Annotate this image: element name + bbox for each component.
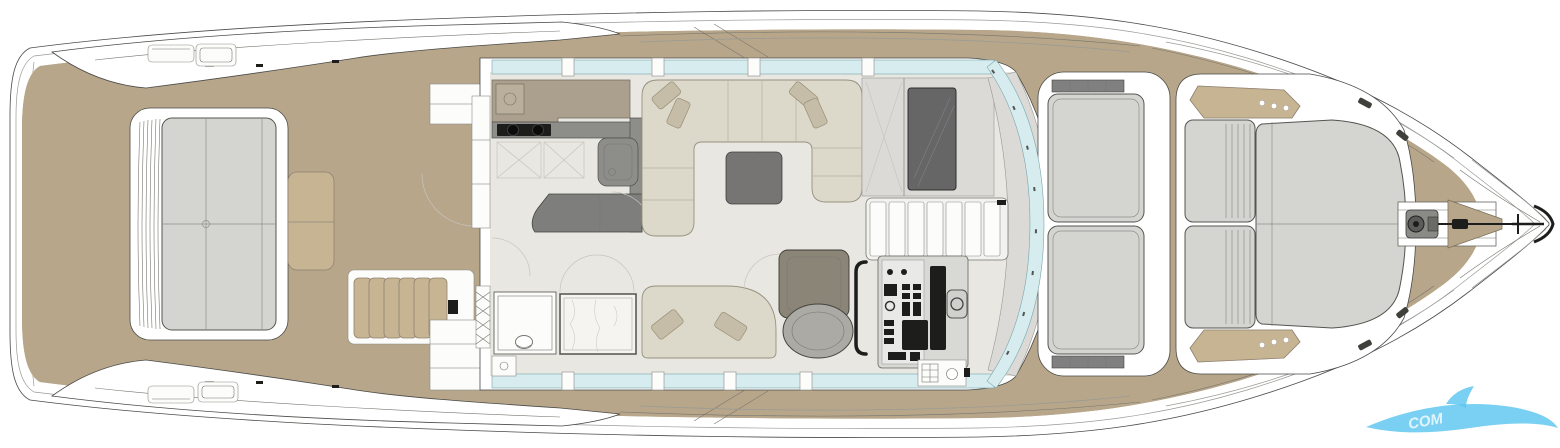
foredeck	[1176, 74, 1416, 374]
foredeck-corner-pad-bottom	[1190, 330, 1300, 362]
console-knob	[887, 269, 893, 275]
vent-grille-top	[1052, 80, 1124, 92]
stair-tread	[889, 202, 905, 256]
wet-bar-sink	[947, 369, 958, 380]
windlass-hub	[1413, 221, 1419, 227]
wheel-bracket	[947, 290, 967, 318]
console-switch	[902, 293, 910, 299]
window-divider	[652, 372, 664, 390]
window-divider	[862, 58, 874, 76]
wet-bar-fitting	[964, 368, 970, 377]
console-switch	[913, 284, 921, 290]
vent-grille-bottom	[1052, 356, 1124, 368]
aft-sliding-door	[472, 96, 490, 228]
galley-appliance	[496, 84, 524, 114]
gunwale-step-box	[148, 45, 194, 62]
stairs-mark	[997, 200, 1006, 205]
tv-panel	[908, 88, 956, 190]
stair-tread	[870, 202, 886, 256]
stair-tread	[927, 202, 943, 256]
deck-light	[1271, 103, 1277, 109]
foredeck-bench-bottom	[1185, 226, 1255, 328]
companionway-stairs	[866, 198, 1008, 260]
tv-cabinet	[862, 78, 994, 196]
console-label	[884, 338, 894, 344]
cleat-mark	[332, 60, 339, 63]
window-divider	[562, 58, 574, 76]
console-switch	[888, 352, 906, 360]
aft-hatch-bottom	[198, 382, 238, 402]
window-divider	[652, 58, 664, 76]
cooktop-burner	[533, 125, 544, 136]
console-switch	[910, 352, 920, 361]
step-handle	[448, 300, 458, 314]
galley-island	[532, 194, 642, 232]
stair-tread	[946, 202, 962, 256]
wave-swoosh	[1366, 404, 1558, 432]
console-switch	[902, 284, 910, 290]
windlass-motor	[1428, 217, 1438, 231]
bench-cushion	[1185, 120, 1255, 222]
window-divider	[562, 372, 574, 390]
console-screen	[902, 320, 928, 350]
window-divider	[800, 372, 812, 390]
deck-plan-drawing: COM	[0, 0, 1560, 448]
console-display-bezel	[930, 266, 946, 350]
coachroof-cushion-top	[1048, 94, 1144, 222]
toilet	[516, 336, 533, 349]
side-locker	[492, 356, 516, 376]
console-button-bank	[913, 302, 921, 316]
cleat-mark	[256, 64, 263, 67]
coachroof-cushion-bottom	[1048, 226, 1144, 354]
coachroof-sunpad	[1038, 72, 1170, 376]
yacht-deck-plan: COM	[0, 0, 1560, 448]
chain-stopper	[1452, 219, 1468, 229]
window-divider	[724, 372, 736, 390]
console-switch	[884, 284, 897, 296]
foredeck-corner-pad-top	[1190, 86, 1300, 118]
stair-tread	[984, 202, 1000, 256]
aft-sunbed	[130, 108, 288, 340]
aft-ottoman-table	[288, 172, 334, 270]
watermark: COM	[1366, 386, 1558, 433]
console-label	[884, 320, 894, 326]
deck-light	[1259, 100, 1265, 106]
window-divider	[748, 58, 760, 76]
console-knob	[901, 269, 907, 275]
console-switch	[913, 293, 921, 299]
stair-tread	[965, 202, 981, 256]
foredeck-bench-top	[1185, 120, 1255, 222]
cushion	[1048, 94, 1144, 222]
deck-light	[1283, 105, 1289, 111]
stair-tread	[908, 202, 924, 256]
aft-hatch-top	[196, 44, 236, 66]
corner-pad-planks	[1190, 86, 1300, 118]
cooktop-burner	[508, 125, 519, 136]
console-button-bank	[902, 302, 910, 316]
salon	[472, 58, 1058, 390]
helm-chair	[779, 250, 853, 358]
console-label	[884, 329, 894, 335]
